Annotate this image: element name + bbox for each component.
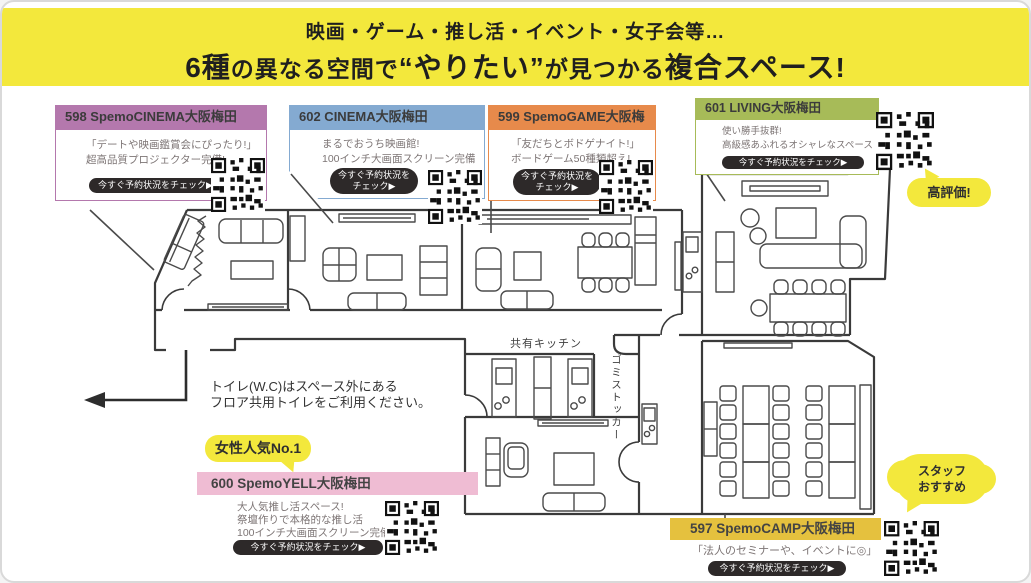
qr-code-597	[884, 521, 939, 576]
exit-arrow	[84, 350, 186, 408]
room-bar-597-camp: 597 SpemoCAMP大阪梅田	[670, 518, 881, 540]
check-availability-button-600[interactable]: 今すぐ予約状況をチェック▶	[233, 540, 383, 555]
kitchen-label: 共有キッチン	[510, 335, 582, 351]
room-card-602-title: 602 CINEMA大阪梅田	[289, 105, 485, 129]
toilet-note: トイレ(W.C)はスペース外にある フロア共用トイレをご利用ください。	[210, 379, 431, 410]
furniture-601-living	[683, 181, 866, 336]
room-600-description: 大人気推し活スペース! 祭壇作りで本格的な推し活 100インチ大画面スクリーン完…	[237, 501, 391, 540]
qr-code-598	[211, 158, 265, 212]
furniture-602-cinema	[290, 214, 447, 310]
flyer-page: 映画・ゲーム・推し活・イベント・女子会等… 6種の異なる空間で“やりたい”が見つ…	[0, 0, 1031, 583]
furniture-600-yell	[486, 420, 608, 511]
qr-code-600	[385, 501, 439, 555]
room-bar-600-yell: 600 SpemoYELL大阪梅田	[197, 472, 478, 495]
check-availability-button-597[interactable]: 今すぐ予約状況をチェック▶	[708, 561, 846, 576]
check-availability-button-602[interactable]: 今すぐ予約状況をチェック▶	[330, 168, 418, 194]
room-card-601-living: 601 LIVING大阪梅田 使い勝手抜群! 高級感あふれるオシャレなスペース …	[695, 98, 879, 175]
furniture-598-cinema	[163, 214, 288, 310]
room-card-598-title: 598 SpemoCINEMA大阪梅田	[55, 105, 267, 129]
floor-plan	[2, 2, 1031, 583]
staff-recommend-badge: スタッフ おすすめ	[895, 454, 989, 504]
room-card-602-description: まるでおうち映画館! 100インチ大画面スクリーン完備	[290, 130, 484, 167]
room-card-601-description: 使い勝手抜群! 高級感あふれるオシャレなスペース	[696, 120, 878, 153]
room-card-599-title: 599 SpemoGAME大阪梅田	[488, 105, 656, 129]
furniture-597-camp	[704, 343, 871, 509]
high-rating-badge: 高評価!	[907, 178, 991, 207]
header-banner: 映画・ゲーム・推し活・イベント・女子会等… 6種の異なる空間で“やりたい”が見つ…	[2, 8, 1029, 86]
trash-stocker-label: ゴミストッカー	[609, 354, 624, 466]
room-card-602-cinema: 602 CINEMA大阪梅田 まるでおうち映画館! 100インチ大画面スクリーン…	[289, 105, 485, 199]
furniture-599-game	[476, 215, 681, 309]
qr-code-602	[428, 170, 482, 224]
qr-code-601	[876, 112, 934, 170]
check-availability-button-601[interactable]: 今すぐ予約状況をチェック▶	[722, 156, 864, 169]
check-availability-button-598[interactable]: 今すぐ予約状況をチェック▶	[89, 178, 222, 193]
banner-line2: 6種の異なる空間で“やりたい”が見つかる複合スペース!	[2, 46, 1029, 86]
female-popularity-badge: 女性人気No.1	[205, 435, 311, 462]
room-597-description: 「法人のセミナーや、イベントに◎」	[692, 545, 877, 559]
room-card-598-cinema: 598 SpemoCINEMA大阪梅田 「デートや映画鑑賞会にぴったり!」 超高…	[55, 105, 267, 201]
room-card-601-title: 601 LIVING大阪梅田	[695, 98, 879, 119]
qr-code-599	[599, 160, 653, 214]
banner-line1: 映画・ゲーム・推し活・イベント・女子会等…	[2, 17, 1029, 44]
furniture-kitchen	[492, 357, 657, 444]
room-card-599-game: 599 SpemoGAME大阪梅田 「友だちとボドゲナイト!」 ボードゲーム50…	[488, 105, 656, 201]
check-availability-button-599[interactable]: 今すぐ予約状況をチェック▶	[513, 169, 601, 195]
